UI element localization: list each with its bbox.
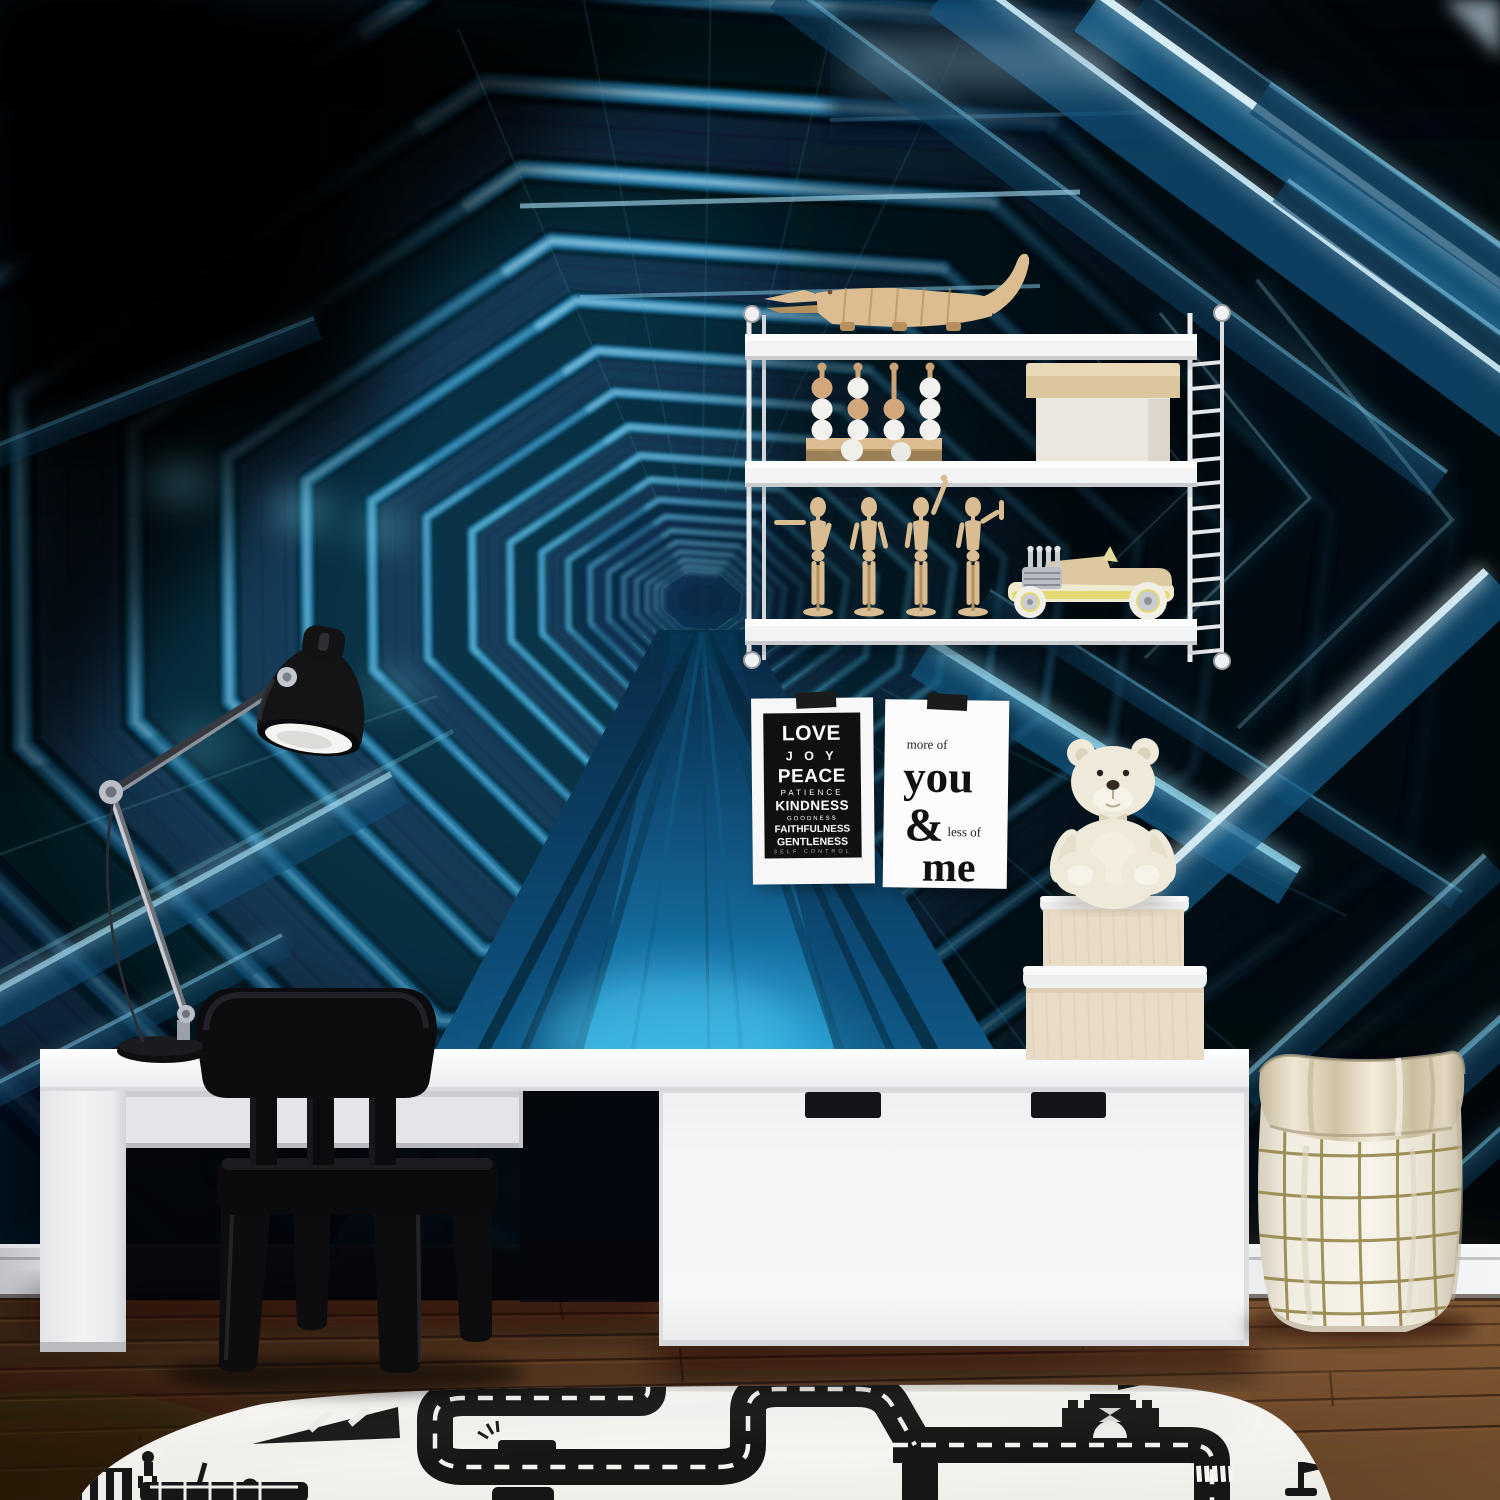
svg-text:SELF CONTROL: SELF CONTROL bbox=[774, 849, 852, 856]
svg-text:less of: less of bbox=[947, 824, 981, 839]
svg-text:me: me bbox=[922, 845, 976, 892]
svg-text:J O Y: J O Y bbox=[786, 749, 838, 764]
svg-text:GOODNESS: GOODNESS bbox=[787, 816, 838, 823]
svg-text:LOVE: LOVE bbox=[782, 722, 841, 746]
svg-text:GENTLENESS: GENTLENESS bbox=[777, 836, 848, 849]
svg-text:you: you bbox=[903, 751, 974, 802]
svg-text:more of: more of bbox=[907, 736, 949, 752]
svg-text:PATIENCE: PATIENCE bbox=[781, 788, 844, 798]
svg-text:FAITHFULNESS: FAITHFULNESS bbox=[775, 824, 851, 836]
svg-text:KINDNESS: KINDNESS bbox=[775, 798, 849, 814]
svg-text:PEACE: PEACE bbox=[778, 766, 846, 788]
